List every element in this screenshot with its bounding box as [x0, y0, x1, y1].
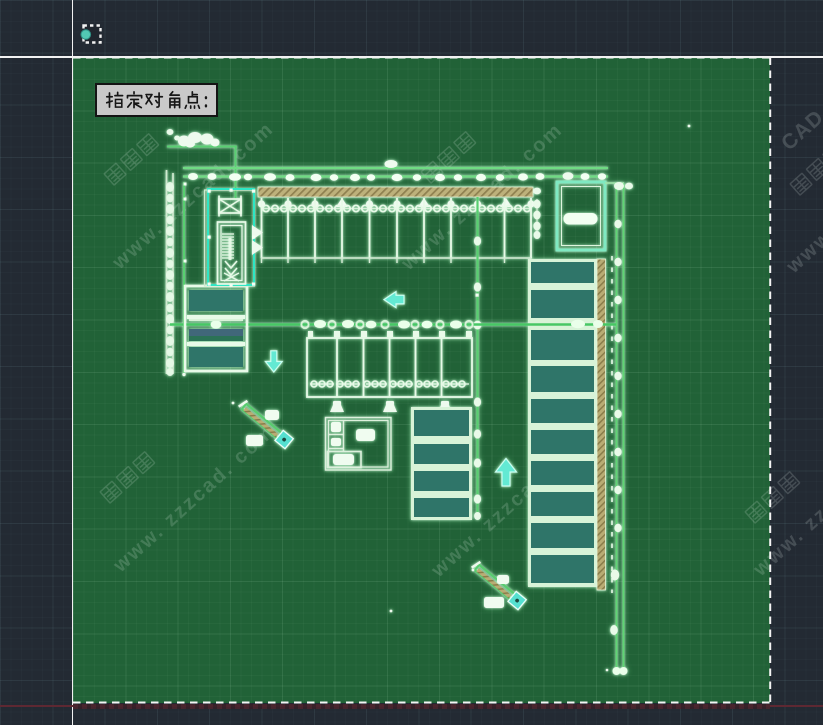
svg-text:CAD: CAD — [777, 106, 823, 156]
